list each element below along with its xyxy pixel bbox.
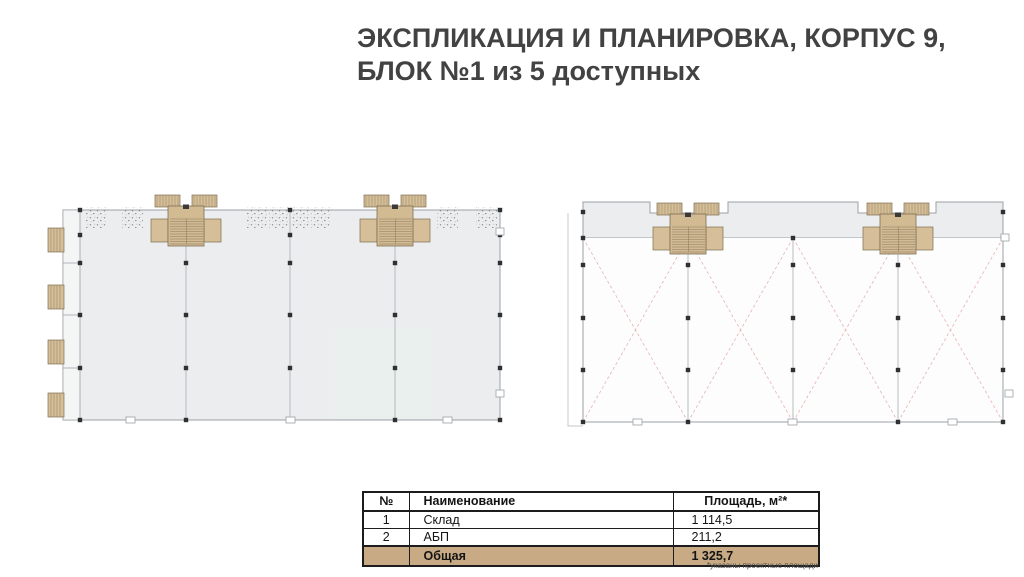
floor-plan-bracing <box>555 188 1024 438</box>
warehouse-outline <box>63 210 500 420</box>
staircase-right <box>360 195 430 246</box>
floor-plan-warehouse <box>40 188 510 438</box>
total-empty-cell <box>363 546 409 566</box>
floor-plan-warehouse-drawing <box>40 188 510 438</box>
table-row: 1 Склад 1 114,5 <box>363 511 819 529</box>
floor-plan-bracing-drawing <box>555 188 1024 438</box>
row-area: 211,2 <box>673 529 819 547</box>
header-number: № <box>363 492 409 511</box>
footnote: *указаны проектные площади <box>558 561 818 570</box>
page-title-line2: БЛОК №1 из 5 доступных <box>357 55 997 88</box>
header-area: Площадь, м²* <box>673 492 819 511</box>
page-title: ЭКСПЛИКАЦИЯ И ПЛАНИРОВКА, КОРПУС 9, БЛОК… <box>357 22 997 88</box>
row-name: Склад <box>409 511 673 529</box>
page-root: ЭКСПЛИКАЦИЯ И ПЛАНИРОВКА, КОРПУС 9, БЛОК… <box>0 0 1024 577</box>
row-name: АБП <box>409 529 673 547</box>
offset-line <box>568 213 583 426</box>
header-name: Наименование <box>409 492 673 511</box>
row-number: 1 <box>363 511 409 529</box>
watermark-tint <box>335 328 431 419</box>
staircase-left <box>151 195 221 246</box>
row-area: 1 114,5 <box>673 511 819 529</box>
staircase-right <box>863 203 933 254</box>
page-title-line1: ЭКСПЛИКАЦИЯ И ПЛАНИРОВКА, КОРПУС 9, <box>357 22 997 55</box>
row-number: 2 <box>363 529 409 547</box>
dock-doors <box>48 228 64 417</box>
table-row: 2 АБП 211,2 <box>363 529 819 547</box>
staircase-left <box>653 203 723 254</box>
office-band <box>583 202 1003 238</box>
table-header-row: № Наименование Площадь, м²* <box>363 492 819 511</box>
explication-table: № Наименование Площадь, м²* 1 Склад 1 11… <box>362 491 820 567</box>
